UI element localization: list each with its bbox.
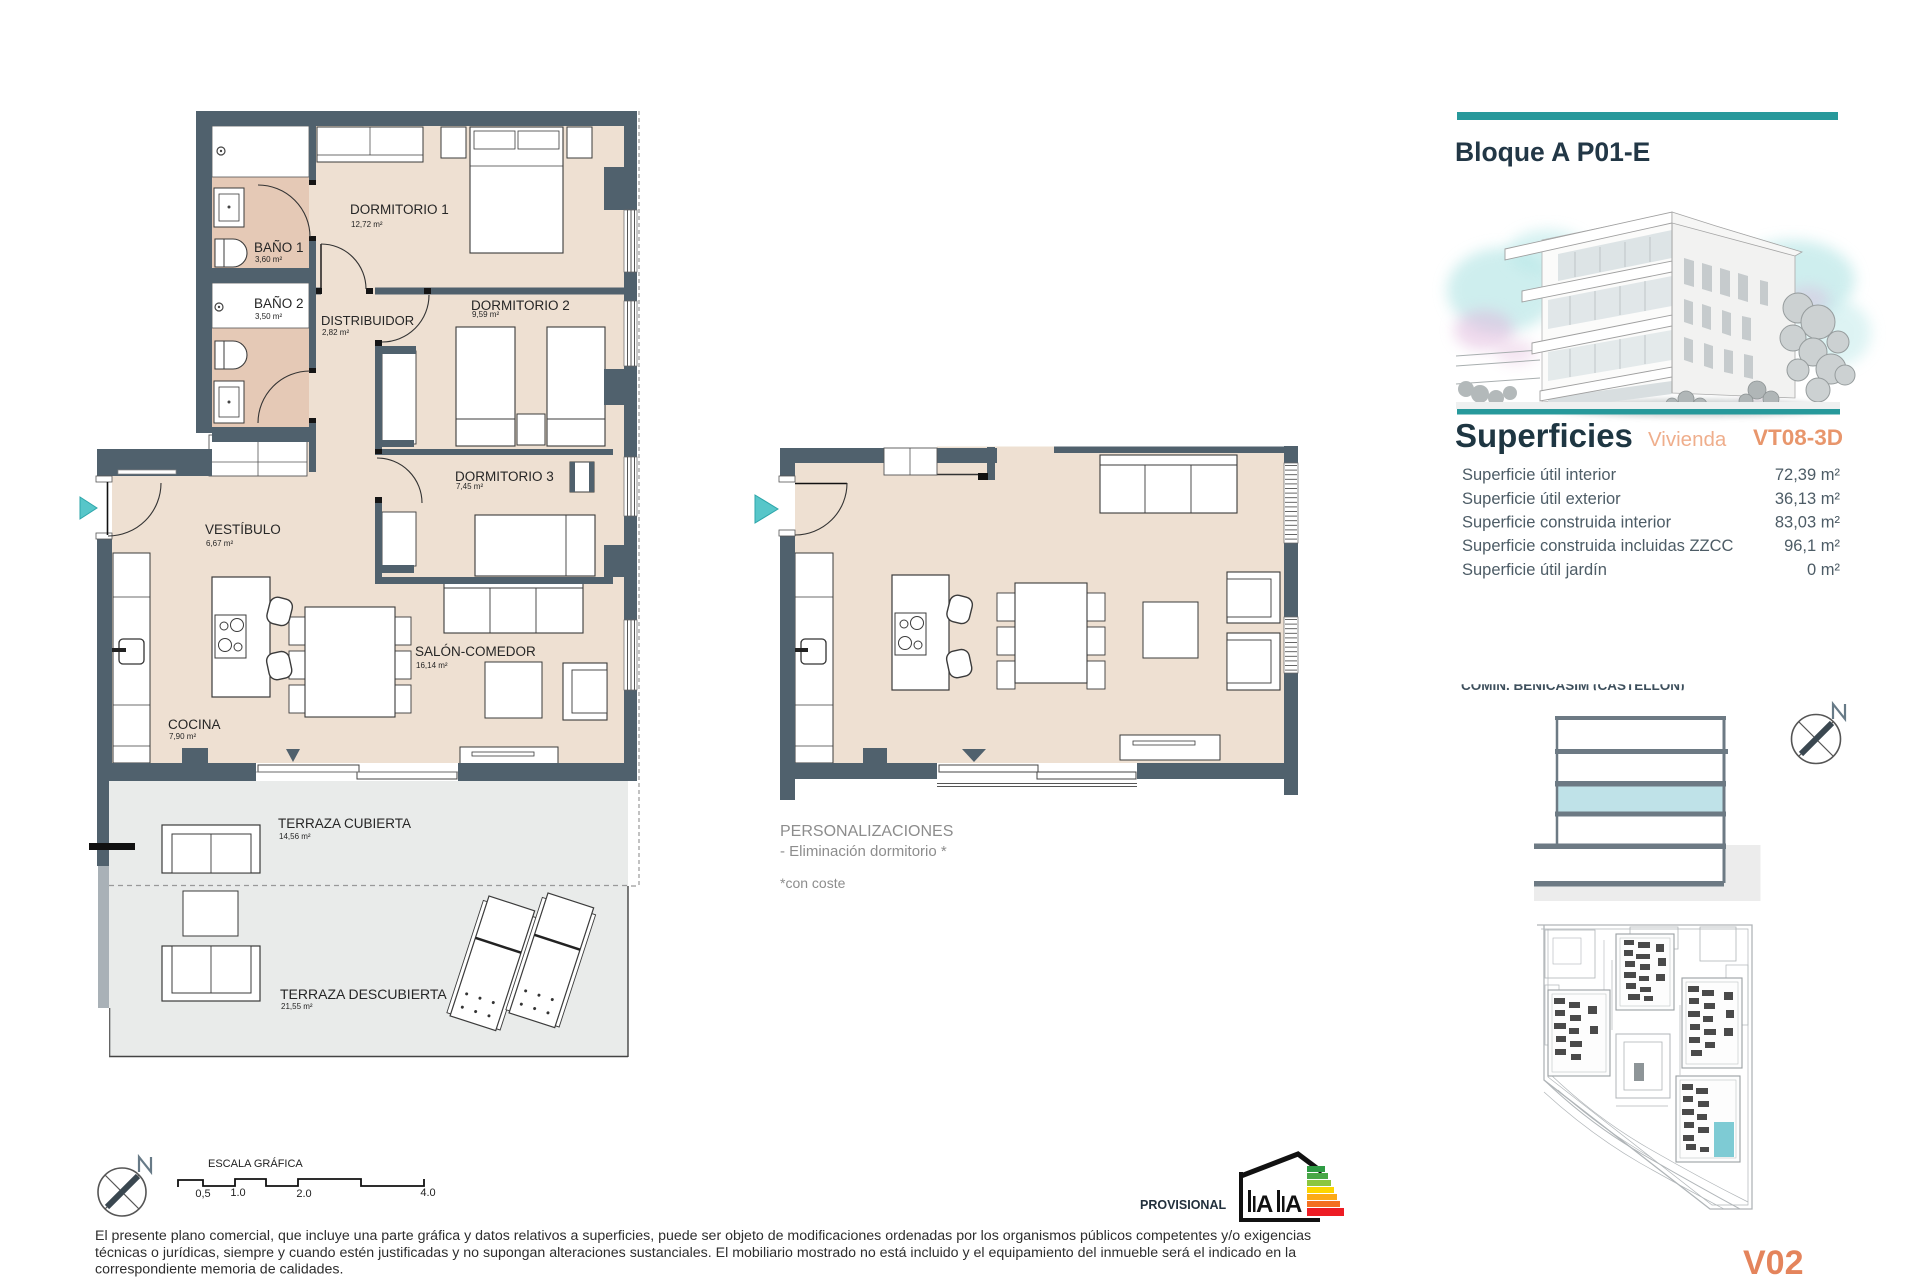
svg-text:DISTRIBUIDOR: DISTRIBUIDOR [321,313,414,328]
svg-text:ESCALA GRÁFICA: ESCALA GRÁFICA [208,1157,303,1170]
svg-text:El presente plano comercial, q: El presente plano comercial, que incluye… [95,1228,1311,1244]
svg-text:7,45 m²: 7,45 m² [456,482,483,491]
svg-text:COMIN. BENICASIM (CASTELLON): COMIN. BENICASIM (CASTELLON) [1461,678,1685,693]
svg-text:Superficie útil exterior: Superficie útil exterior [1462,490,1621,508]
svg-text:TERRAZA CUBIERTA: TERRAZA CUBIERTA [278,816,411,831]
svg-text:BAÑO 1: BAÑO 1 [254,240,304,255]
svg-text:A: A [1285,1191,1302,1218]
svg-text:2,82 m²: 2,82 m² [322,328,349,337]
svg-text:72,39 m²: 72,39 m² [1775,466,1841,484]
svg-text:14,56 m²: 14,56 m² [279,832,311,841]
svg-text:16,14 m²: 16,14 m² [416,661,448,670]
svg-text:3,50 m²: 3,50 m² [255,312,282,321]
svg-text:12,72 m²: 12,72 m² [351,220,383,229]
svg-text:Superficie útil jardín: Superficie útil jardín [1462,561,1607,579]
svg-text:A: A [1256,1191,1273,1218]
svg-text:7,90 m²: 7,90 m² [169,732,196,741]
svg-text:- Eliminación dormitorio *: - Eliminación dormitorio * [780,843,947,860]
svg-text:4.0: 4.0 [420,1187,435,1199]
svg-text:PERSONALIZACIONES: PERSONALIZACIONES [780,823,953,840]
svg-text:96,1 m²: 96,1 m² [1784,537,1840,555]
svg-text:VT08-3D: VT08-3D [1753,425,1843,450]
svg-text:técnicas o jurídicas, siempre: técnicas o jurídicas, siempre y cuando e… [95,1245,1296,1261]
svg-text:DORMITORIO 1: DORMITORIO 1 [350,202,449,217]
svg-text:V02: V02 [1743,1244,1804,1280]
svg-text:9,59 m²: 9,59 m² [472,310,499,319]
svg-text:correspondiente memoria de cal: correspondiente memoria de calidades. [95,1262,343,1278]
svg-text:3,60 m²: 3,60 m² [255,255,282,264]
svg-text:0 m²: 0 m² [1807,561,1841,579]
svg-text:PROVISIONAL: PROVISIONAL [1140,1198,1226,1212]
svg-text:Bloque A P01-E: Bloque A P01-E [1455,137,1650,167]
svg-text:COCINA: COCINA [168,717,221,732]
svg-text:Superficies: Superficies [1455,417,1633,454]
svg-text:Superficie útil interior: Superficie útil interior [1462,466,1617,484]
svg-text:SALÓN-COMEDOR: SALÓN-COMEDOR [415,644,536,659]
svg-text:VESTÍBULO: VESTÍBULO [205,522,281,537]
svg-text:BAÑO 2: BAÑO 2 [254,296,304,311]
svg-text:1.0: 1.0 [230,1187,245,1199]
svg-text:Superficie construida interior: Superficie construida interior [1462,514,1672,532]
svg-text:2.0: 2.0 [296,1188,311,1200]
svg-text:21,55 m²: 21,55 m² [281,1002,313,1011]
svg-text:Superficie construida incluida: Superficie construida incluidas ZZCC [1462,537,1734,555]
svg-text:TERRAZA DESCUBIERTA: TERRAZA DESCUBIERTA [280,986,447,1002]
svg-text:36,13 m²: 36,13 m² [1775,490,1841,508]
svg-text:0,5: 0,5 [195,1188,210,1200]
svg-text:6,67 m²: 6,67 m² [206,539,233,548]
svg-text:*con coste: *con coste [780,875,846,891]
svg-text:Vivienda: Vivienda [1648,428,1727,451]
svg-text:83,03 m²: 83,03 m² [1775,514,1841,532]
